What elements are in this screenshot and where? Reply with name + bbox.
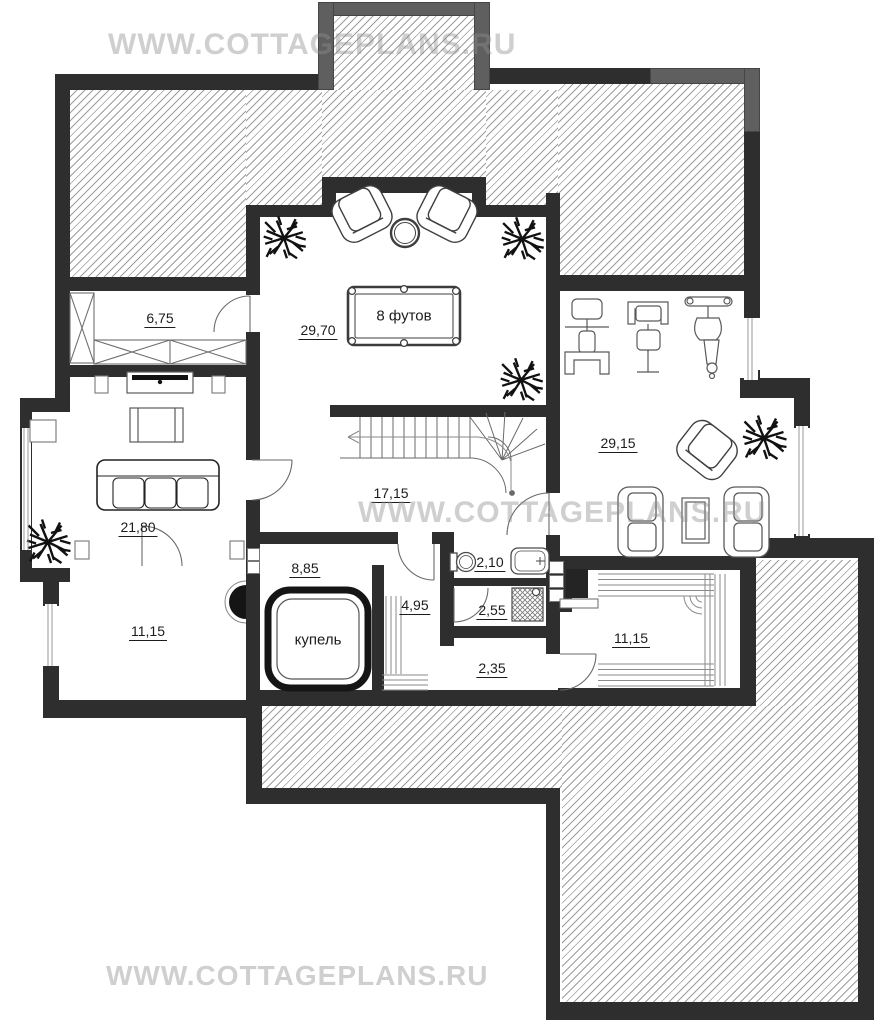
plant-icon [502, 217, 544, 259]
wall [246, 332, 260, 460]
utility-shaft [549, 561, 564, 574]
wall [258, 532, 398, 544]
wall [55, 74, 70, 404]
wall [322, 177, 336, 217]
shower-tray [512, 588, 543, 621]
window [796, 426, 808, 536]
utility-shaft [549, 575, 564, 588]
wall [55, 74, 322, 90]
sofa [97, 460, 219, 510]
wall [756, 538, 874, 558]
wall [488, 68, 650, 84]
wall [744, 68, 760, 132]
plant-icon [743, 416, 787, 460]
plunge-pool-label: купель [295, 632, 342, 649]
wall [740, 378, 810, 398]
room-label-bath: 2,10 [474, 554, 505, 570]
watermark-text: WWW.COTTAGEPLANS.RU [358, 496, 766, 530]
room-label-living: 21,80 [118, 519, 157, 535]
watermark-text: WWW.COTTAGEPLANS.RU [108, 28, 516, 62]
wall [43, 700, 262, 718]
wall [330, 405, 558, 417]
hatched-area [562, 706, 858, 1002]
electrical-panel [247, 561, 260, 574]
staircase [340, 412, 545, 495]
coffee-table [130, 408, 183, 442]
wall [246, 690, 558, 706]
hatched-area [486, 90, 558, 205]
gym-machine [685, 297, 732, 379]
room-label-gym: 29,15 [598, 435, 637, 451]
wall [794, 396, 810, 428]
wall [472, 177, 486, 217]
wall [546, 556, 756, 570]
wall [43, 574, 59, 606]
wall [246, 205, 260, 295]
wall [546, 788, 560, 1010]
room-label-sauna: 11,15 [612, 630, 650, 646]
watermark-text: WWW.COTTAGEPLANS.RU [106, 960, 488, 992]
wall [440, 626, 548, 638]
wall [246, 788, 560, 804]
room-label-bottom-left: 11,15 [129, 623, 167, 639]
window [22, 428, 31, 550]
round-table [391, 219, 419, 247]
wall [558, 688, 756, 706]
room-label-plunge: 8,85 [289, 560, 320, 576]
plant-icon [264, 216, 306, 258]
wardrobe [70, 293, 246, 364]
hatched-area [246, 90, 322, 205]
hatched-area [322, 90, 486, 177]
wall [62, 365, 246, 377]
hatched-area [756, 560, 858, 708]
hatched-area [62, 90, 246, 277]
floor-plan: 6,75 29,70 8 футов 17,15 29,15 21,80 2,1… [0, 0, 885, 1033]
room-label-steam: 4,95 [399, 597, 430, 613]
billiard-table-label: 8 футов [376, 308, 431, 325]
wall [318, 2, 490, 16]
window [45, 604, 57, 666]
bathtub [511, 548, 549, 574]
wall [546, 193, 560, 493]
room-label-storage: 6,75 [144, 310, 175, 326]
wall [246, 700, 262, 792]
hatched-area [558, 84, 744, 275]
wall [858, 552, 874, 1020]
electrical-panel [247, 548, 260, 561]
hatched-area [262, 706, 562, 788]
room-label-corridor: 2,35 [476, 660, 507, 676]
room-label-shower: 2,55 [476, 602, 507, 618]
wall [246, 500, 260, 700]
wall [322, 177, 486, 193]
wall [556, 275, 746, 291]
armchair [672, 415, 743, 484]
plant-icon [27, 520, 71, 564]
plant-icon [501, 358, 543, 400]
wall [546, 1002, 872, 1020]
window [744, 318, 758, 380]
gym-machine [628, 302, 668, 372]
utility-shaft [549, 589, 564, 602]
gym-machine [565, 299, 609, 374]
wall [440, 578, 548, 586]
room-label-billiard: 29,70 [298, 322, 337, 338]
stove [225, 581, 246, 623]
wall [62, 277, 252, 291]
wall [744, 132, 760, 318]
wall [372, 565, 384, 690]
wall [740, 556, 756, 706]
